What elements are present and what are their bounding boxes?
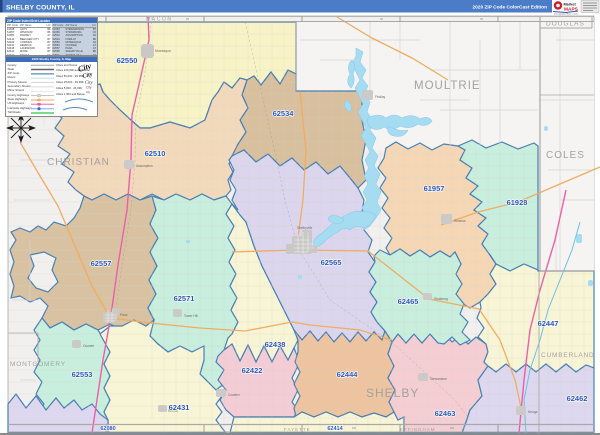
svg-text:Pana: Pana xyxy=(120,313,128,317)
svg-text:MACON: MACON xyxy=(146,17,173,23)
svg-text:62534: 62534 xyxy=(273,109,295,118)
svg-text:COLES: COLES xyxy=(546,150,585,161)
svg-text:Demographic Maps + Data: Demographic Maps + Data xyxy=(554,13,579,16)
svg-text:Market: Market xyxy=(564,3,577,7)
svg-text:62550: 62550 xyxy=(117,56,138,65)
svg-text:CHRISTIAN: CHRISTIAN xyxy=(47,157,110,168)
svg-text:FAYETTE: FAYETTE xyxy=(284,427,311,432)
svg-text:SHELBY COUNTY, IL: SHELBY COUNTY, IL xyxy=(6,4,75,11)
svg-text:City: City xyxy=(86,85,92,89)
svg-text:62462: 62462 xyxy=(567,394,588,403)
svg-text:DOUGLAS: DOUGLAS xyxy=(546,21,585,28)
svg-text:Windsor: Windsor xyxy=(454,219,467,223)
svg-text:EFFINGHAM: EFFINGHAM xyxy=(400,427,436,432)
svg-text:MONTGOMERY: MONTGOMERY xyxy=(10,361,66,368)
svg-text:62565: 62565 xyxy=(321,258,342,267)
svg-text:62553: 62553 xyxy=(72,370,93,379)
svg-text:Cowden: Cowden xyxy=(228,393,240,397)
svg-text:Stewardson: Stewardson xyxy=(430,377,447,381)
svg-text:62447: 62447 xyxy=(538,319,559,328)
svg-text:Neoga: Neoga xyxy=(528,410,538,414)
svg-text:Strasburg: Strasburg xyxy=(434,297,448,301)
svg-text:City: City xyxy=(85,79,93,84)
svg-text:city: city xyxy=(86,90,91,94)
svg-text:Assumption: Assumption xyxy=(136,164,153,168)
svg-text:Moweaqua: Moweaqua xyxy=(155,49,171,53)
svg-text:62422: 62422 xyxy=(242,366,263,375)
svg-text:62557: 62557 xyxy=(91,259,112,268)
svg-text:62571: 62571 xyxy=(174,294,195,303)
svg-text:Oconee: Oconee xyxy=(83,344,94,348)
svg-text:Findlay: Findlay xyxy=(375,95,386,99)
svg-text:CUMBERLAND: CUMBERLAND xyxy=(541,352,595,359)
svg-text:62463: 62463 xyxy=(435,409,456,418)
svg-text:62465: 62465 xyxy=(398,297,419,306)
svg-text:62414: 62414 xyxy=(327,426,343,432)
svg-text:62510: 62510 xyxy=(145,149,166,158)
svg-text:SHELBY: SHELBY xyxy=(366,386,419,400)
svg-text:2020 ZIP Code ColorCast Editio: 2020 ZIP Code ColorCast Edition xyxy=(472,5,547,11)
svg-text:62438: 62438 xyxy=(265,340,286,349)
svg-text:62080: 62080 xyxy=(100,426,115,432)
svg-text:Tower Hill: Tower Hill xyxy=(184,314,198,318)
svg-text:MOULTRIE: MOULTRIE xyxy=(414,80,481,92)
svg-text:Shelbyville: Shelbyville xyxy=(297,226,312,230)
svg-text:62431: 62431 xyxy=(169,403,190,412)
svg-text:61957: 61957 xyxy=(424,184,445,193)
svg-text:61928: 61928 xyxy=(507,198,528,207)
svg-text:62444: 62444 xyxy=(337,370,359,379)
